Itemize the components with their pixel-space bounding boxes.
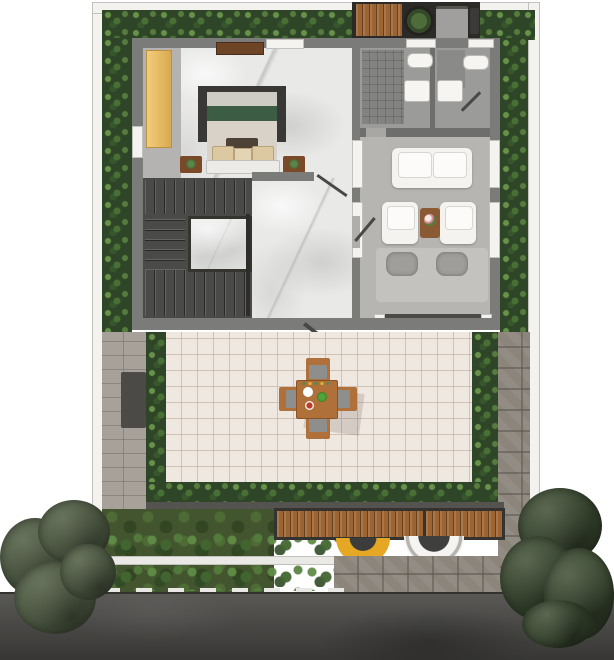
chair-seat — [309, 418, 327, 432]
bedroom-window-west — [132, 126, 143, 158]
dining-chair-north — [306, 358, 330, 381]
stair-core-landing — [188, 216, 252, 272]
dresser — [216, 42, 264, 55]
sofa-cushion — [433, 152, 467, 178]
nightstand-left — [180, 156, 202, 173]
potted-plant — [404, 6, 434, 36]
bed-pillow — [252, 146, 274, 161]
bowl-green — [317, 392, 327, 402]
bath-window-top-1 — [406, 39, 436, 48]
terrace-hedge-bottom — [146, 482, 498, 502]
tree-canopy — [60, 544, 116, 600]
armchair-cushion — [445, 206, 473, 230]
plate-red — [305, 401, 314, 410]
tree-canopy — [522, 600, 594, 648]
terrace-hedge-left — [146, 332, 166, 482]
south-wall-east — [336, 318, 500, 330]
south-wall-west — [132, 318, 302, 330]
washbasin-1 — [404, 80, 430, 102]
washbasin-2 — [437, 80, 463, 102]
hall-living-door-opening — [352, 216, 360, 248]
nightstand-right — [283, 156, 305, 173]
nightstand-plant — [186, 159, 196, 169]
planter-box — [121, 372, 146, 428]
sofa-cushion — [398, 152, 432, 178]
armchair-left — [382, 202, 418, 244]
shower-1 — [362, 50, 404, 124]
service-strip — [352, 2, 480, 38]
armchair-cushion — [387, 206, 415, 230]
stair-flight-left — [145, 214, 185, 270]
coffee-table — [420, 208, 440, 238]
ac-unit — [436, 6, 468, 39]
hedge-right — [500, 38, 528, 332]
deck-panel-west — [277, 511, 423, 537]
tree-right — [500, 488, 614, 660]
bath-window-top-2 — [468, 39, 494, 48]
chair-seat — [309, 365, 327, 379]
hedge-left — [102, 38, 132, 332]
daybed — [376, 248, 488, 302]
daybed-cushion — [436, 252, 468, 276]
staircase — [143, 178, 252, 318]
living-window-right-1 — [489, 140, 500, 188]
bedroom-window-top — [266, 39, 304, 49]
toilet-1 — [407, 53, 433, 68]
bed-green-runner — [207, 106, 277, 121]
bedroom-hall-wall — [252, 172, 314, 181]
garnish — [301, 382, 329, 385]
flower-vase — [424, 214, 436, 226]
stair-flight-bottom — [145, 270, 250, 316]
plate-white — [303, 387, 313, 397]
service-deck — [356, 4, 402, 36]
dining-chair-south — [306, 416, 330, 439]
bed — [198, 86, 286, 174]
small-unit — [470, 8, 479, 34]
tree-left — [0, 500, 125, 640]
deck-panel-east — [426, 511, 502, 537]
living-window-right-2 — [489, 202, 500, 258]
hallway-floor — [252, 178, 352, 318]
chair-seat — [336, 390, 350, 408]
bed-head-linen — [207, 92, 277, 106]
stair-flight-top — [145, 180, 250, 214]
wardrobe — [146, 50, 172, 148]
daybed-cushion — [386, 252, 418, 276]
timber-deck — [274, 508, 505, 540]
floor-plan-render — [0, 0, 614, 660]
nightstand-plant — [289, 159, 299, 169]
dining-table — [296, 380, 338, 419]
toilet-2 — [463, 55, 489, 70]
garden-wall — [108, 556, 336, 565]
living-window-left-1 — [352, 140, 363, 188]
terrace-hedge-right — [472, 332, 498, 482]
stair-rail — [246, 214, 250, 316]
bed-pillow — [212, 146, 234, 161]
sofa — [392, 148, 472, 188]
armchair-right — [440, 202, 476, 244]
bathroom-1-door-opening — [366, 128, 386, 137]
